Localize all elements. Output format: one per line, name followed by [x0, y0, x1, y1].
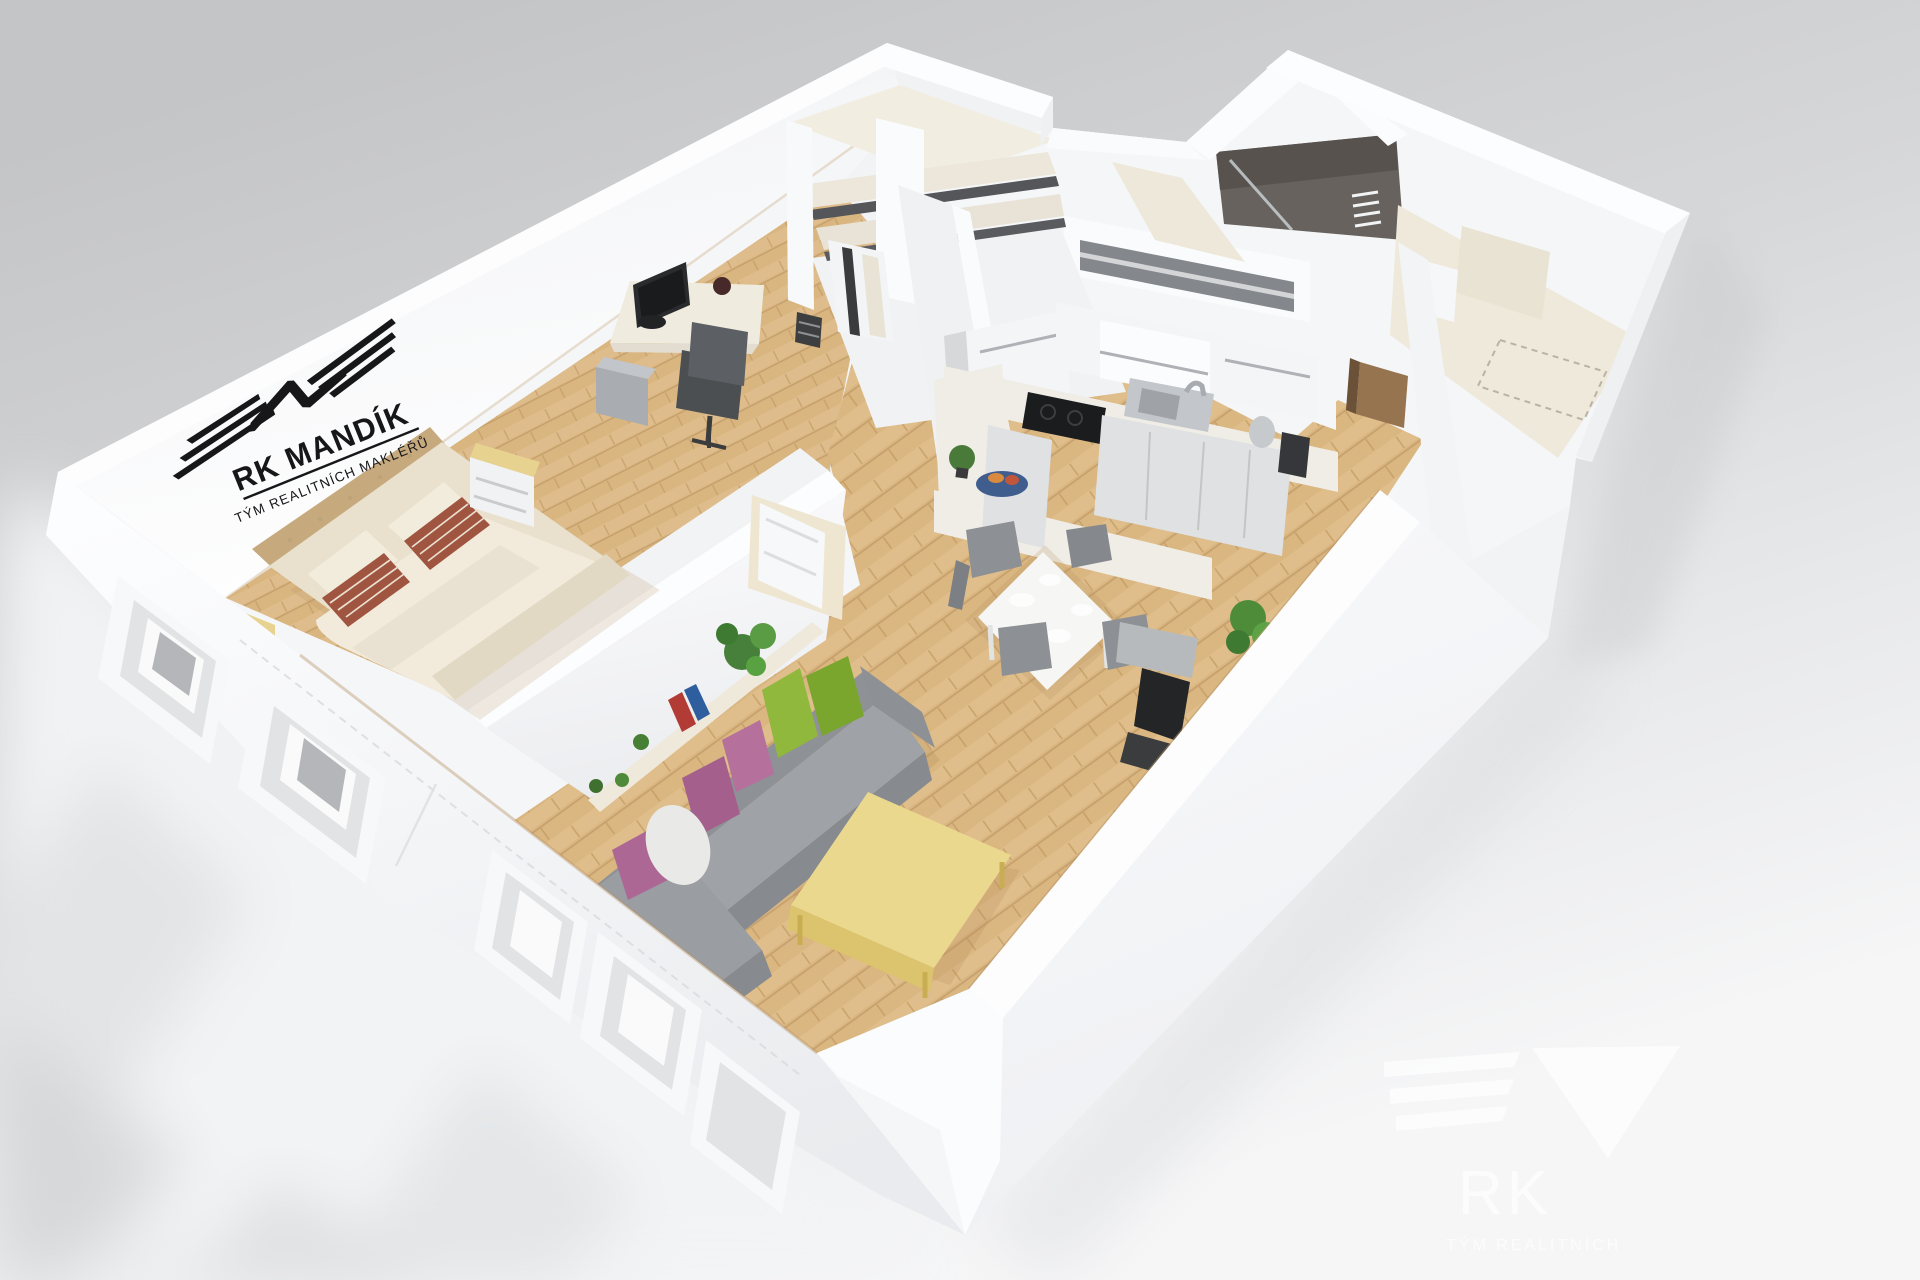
svg-text:TÝM REALITNÍCH: TÝM REALITNÍCH — [1446, 1235, 1621, 1254]
svg-text:RK: RK — [1458, 1159, 1552, 1228]
